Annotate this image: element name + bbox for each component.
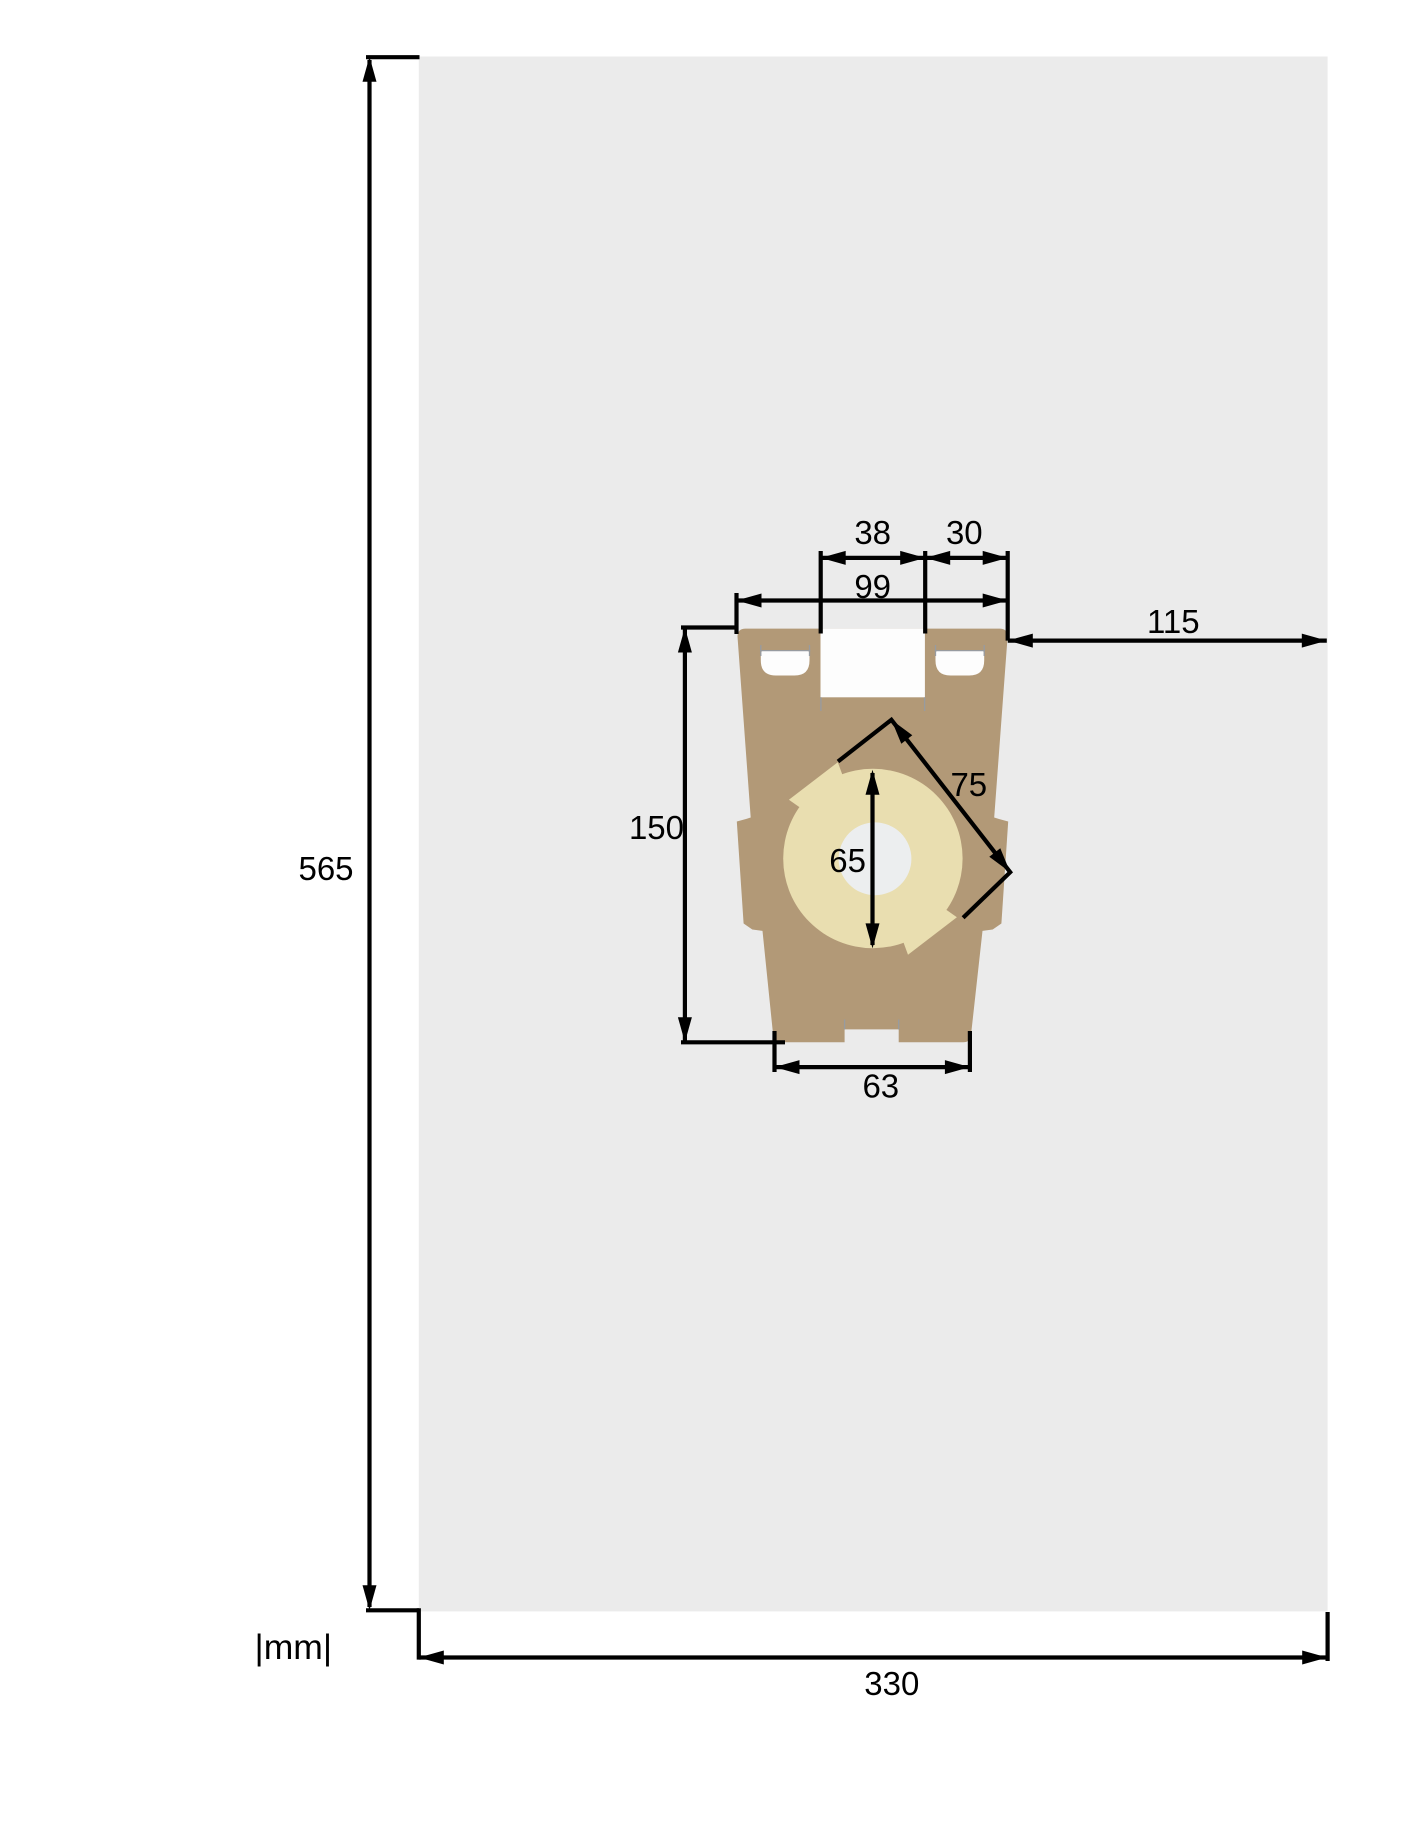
svg-text:99: 99 bbox=[854, 568, 891, 605]
svg-text:565: 565 bbox=[298, 850, 353, 887]
svg-text:75: 75 bbox=[950, 766, 987, 803]
svg-text:150: 150 bbox=[629, 809, 684, 846]
svg-text:38: 38 bbox=[854, 514, 891, 551]
svg-text:30: 30 bbox=[946, 514, 983, 551]
svg-text:330: 330 bbox=[864, 1665, 919, 1702]
svg-text:63: 63 bbox=[862, 1068, 899, 1105]
svg-text:115: 115 bbox=[1147, 603, 1200, 640]
svg-text:|mm|: |mm| bbox=[255, 1627, 333, 1667]
svg-text:65: 65 bbox=[829, 842, 866, 879]
